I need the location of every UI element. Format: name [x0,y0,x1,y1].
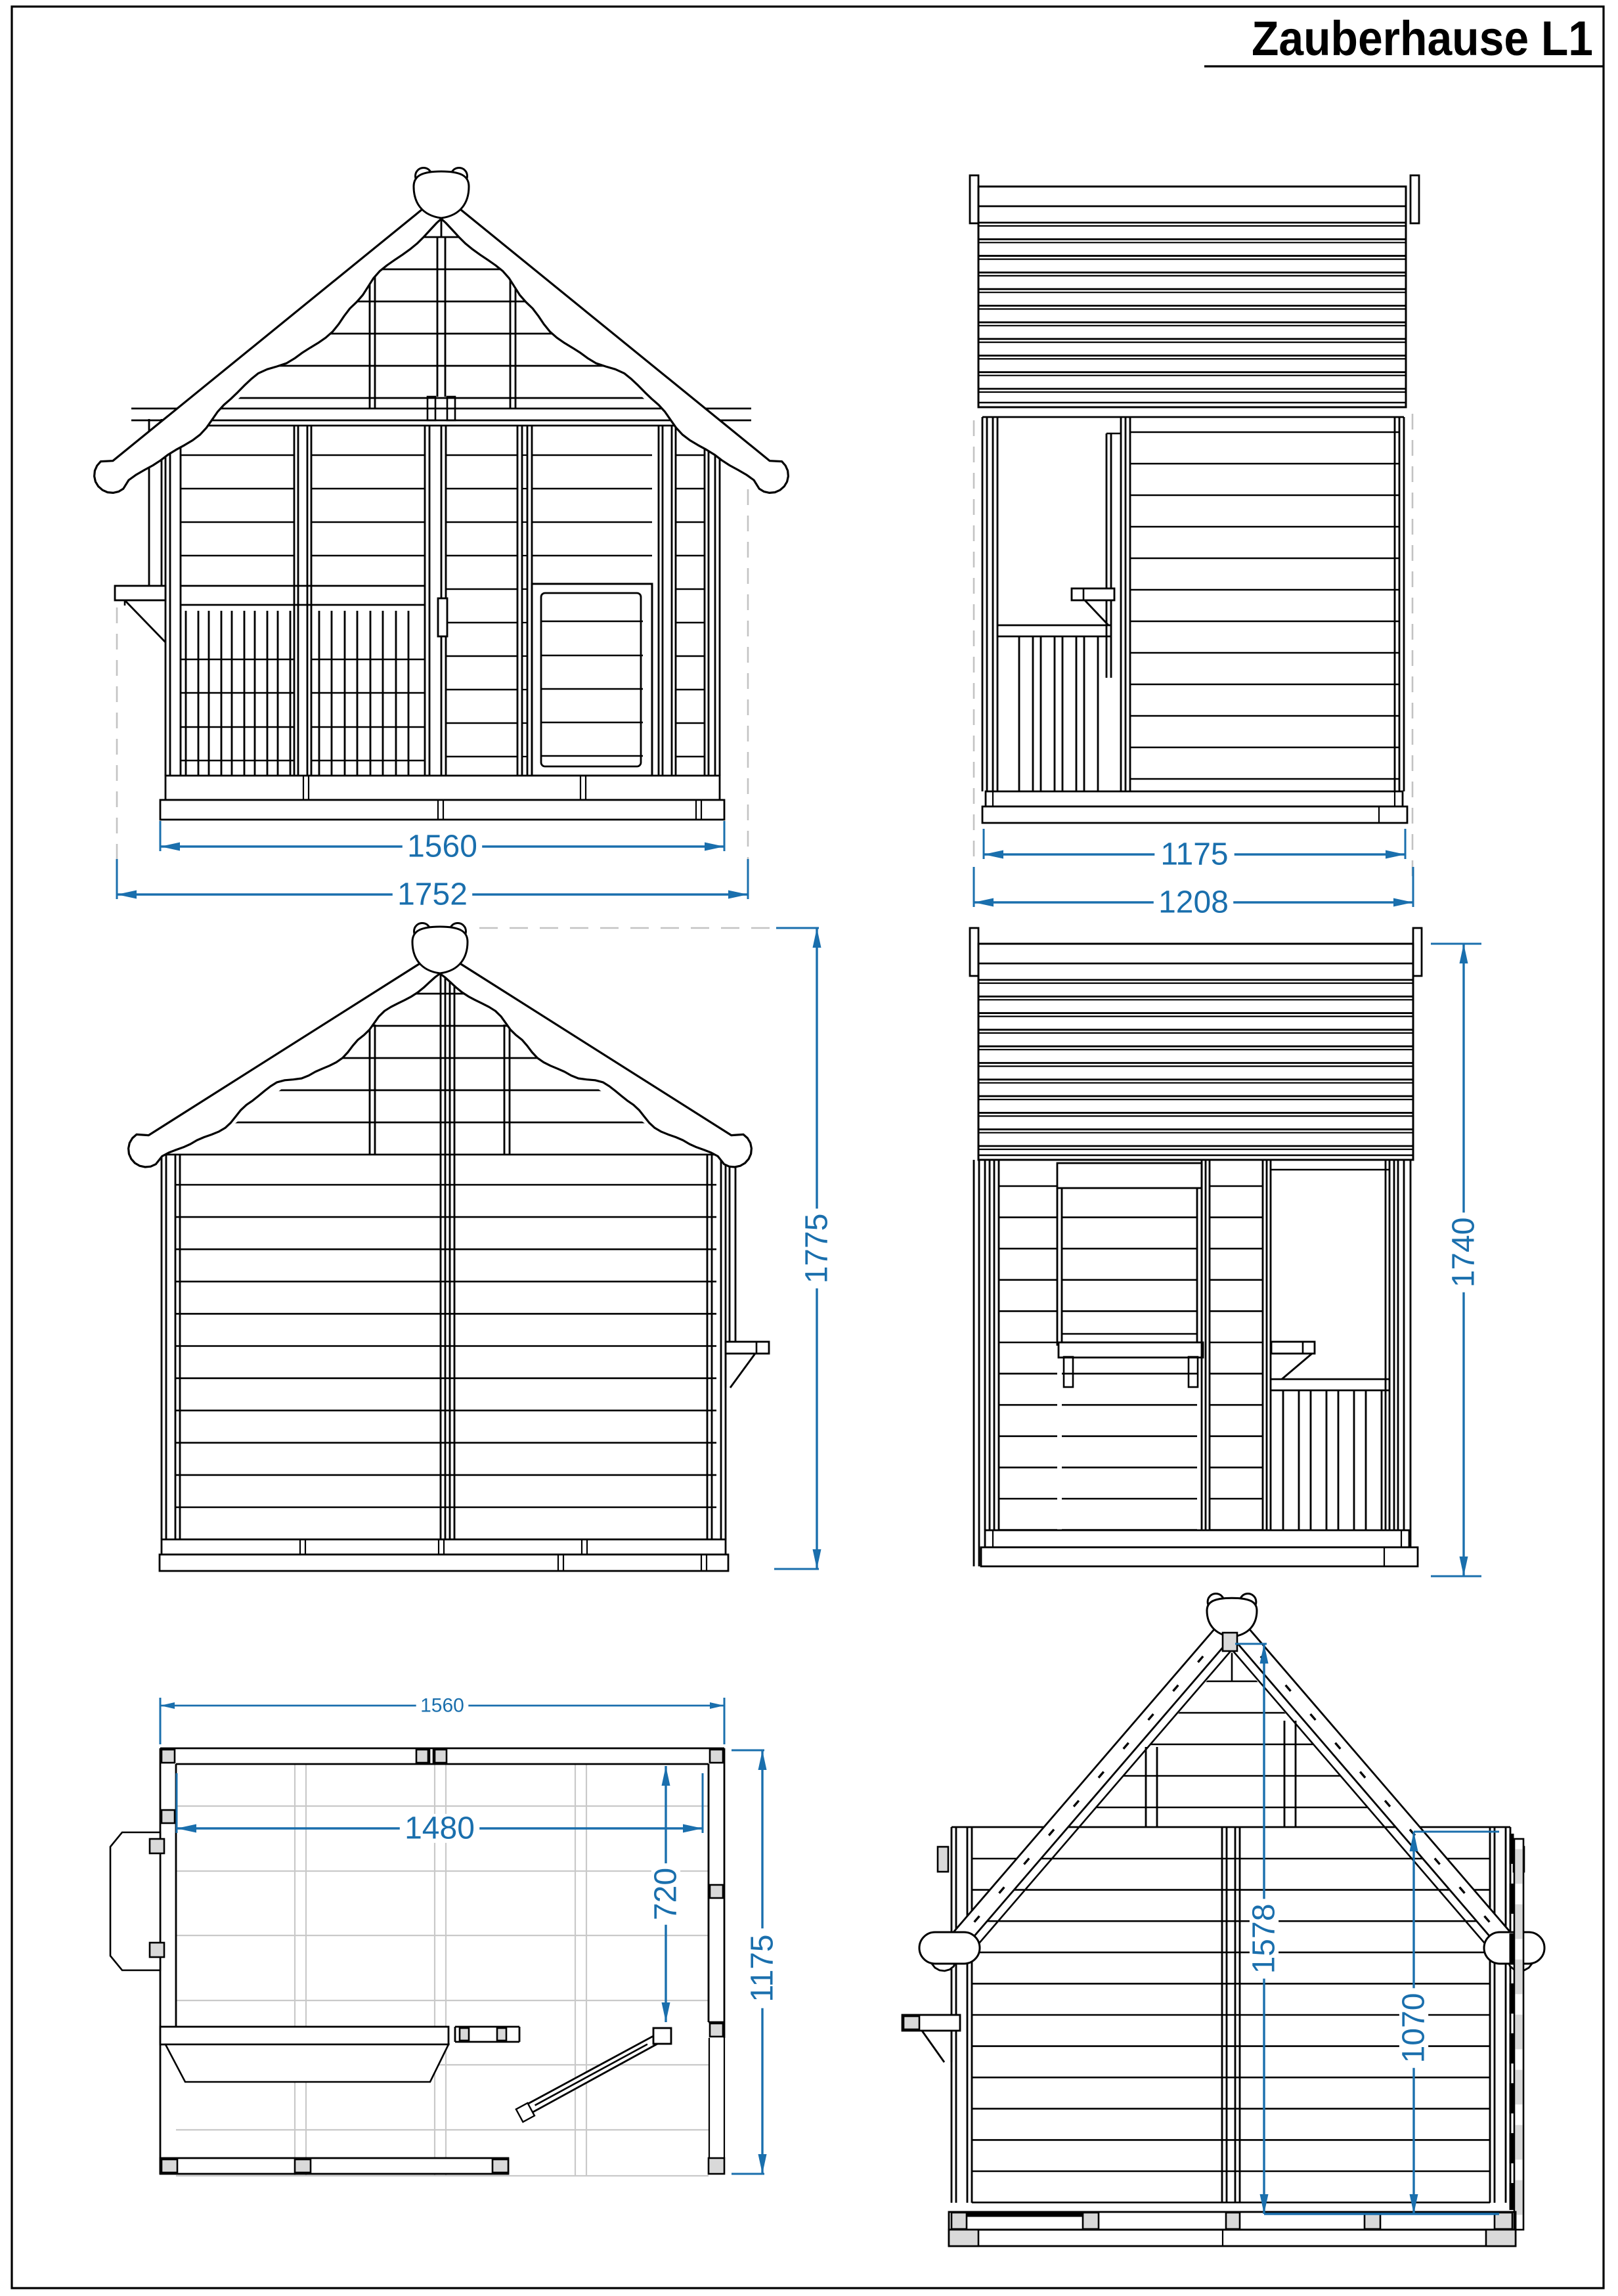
svg-text:1740: 1740 [1447,1218,1481,1288]
svg-text:1560: 1560 [407,829,477,864]
svg-text:1560: 1560 [420,1695,464,1717]
svg-text:1775: 1775 [800,1214,835,1284]
svg-text:1480: 1480 [404,1811,475,1846]
svg-text:1578: 1578 [1247,1904,1282,1974]
svg-text:1752: 1752 [397,877,468,912]
svg-text:1070: 1070 [1397,1993,1432,2064]
svg-text:1175: 1175 [745,1934,780,2002]
svg-text:720: 720 [649,1868,684,1920]
svg-text:Zauberhause L1: Zauberhause L1 [1252,11,1593,66]
svg-text:1208: 1208 [1158,885,1229,920]
svg-text:1175: 1175 [1160,837,1228,872]
